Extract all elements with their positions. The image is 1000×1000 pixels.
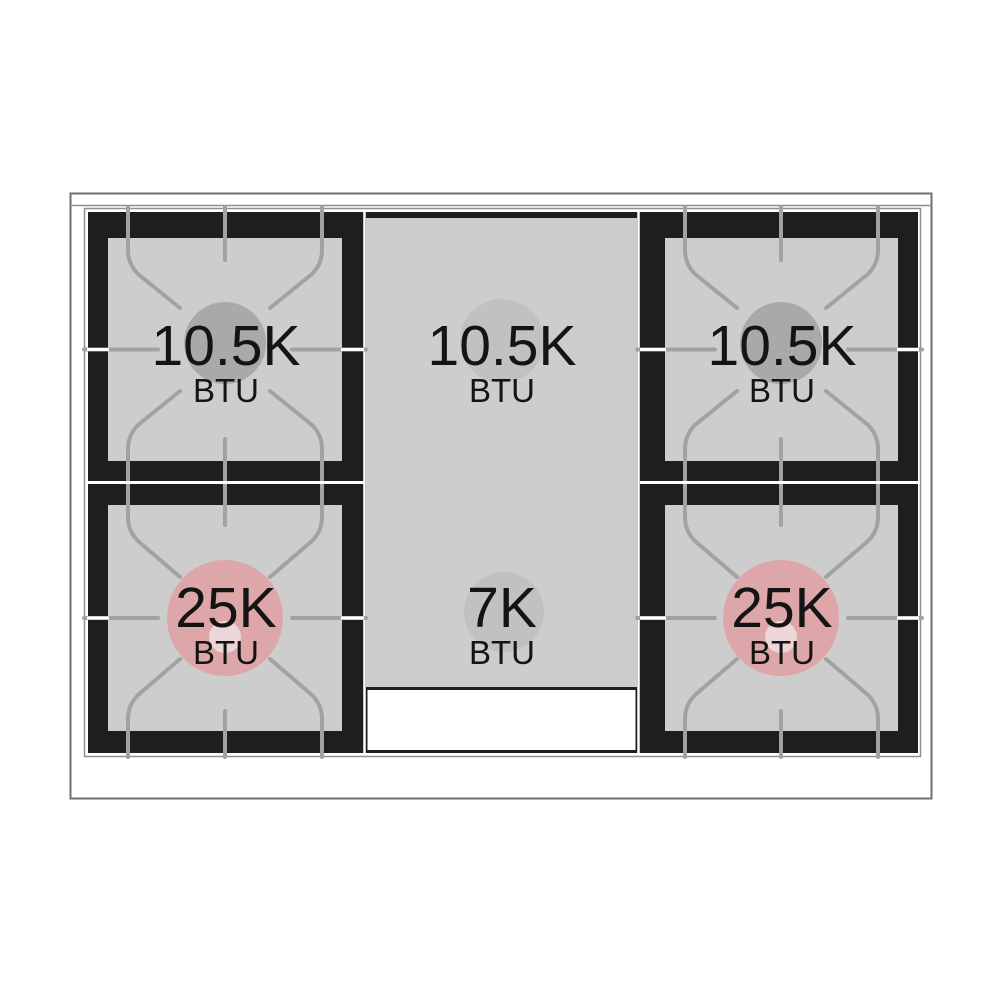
griddle-front-trim	[368, 690, 636, 750]
btu-unit: BTU	[126, 374, 326, 407]
burner-label-left-rear: 10.5K BTU	[126, 318, 326, 407]
btu-rating: 25K	[682, 580, 882, 637]
cooktop-line-art	[0, 0, 1000, 1000]
btu-rating: 7K	[402, 580, 602, 637]
btu-unit: BTU	[682, 374, 882, 407]
btu-rating: 10.5K	[126, 318, 326, 375]
burner-label-center-front: 7K BTU	[402, 580, 602, 669]
btu-rating: 10.5K	[402, 318, 602, 375]
btu-unit: BTU	[126, 636, 326, 669]
range-top-diagram: 10.5K BTU 10.5K BTU 10.5K BTU 25K BTU 7K…	[0, 0, 1000, 1000]
burner-label-right-front: 25K BTU	[682, 580, 882, 669]
btu-rating: 25K	[126, 580, 326, 637]
btu-unit: BTU	[682, 636, 882, 669]
burner-label-center-rear: 10.5K BTU	[402, 318, 602, 407]
btu-unit: BTU	[402, 636, 602, 669]
burner-label-right-rear: 10.5K BTU	[682, 318, 882, 407]
burner-label-left-front: 25K BTU	[126, 580, 326, 669]
btu-unit: BTU	[402, 374, 602, 407]
btu-rating: 10.5K	[682, 318, 882, 375]
